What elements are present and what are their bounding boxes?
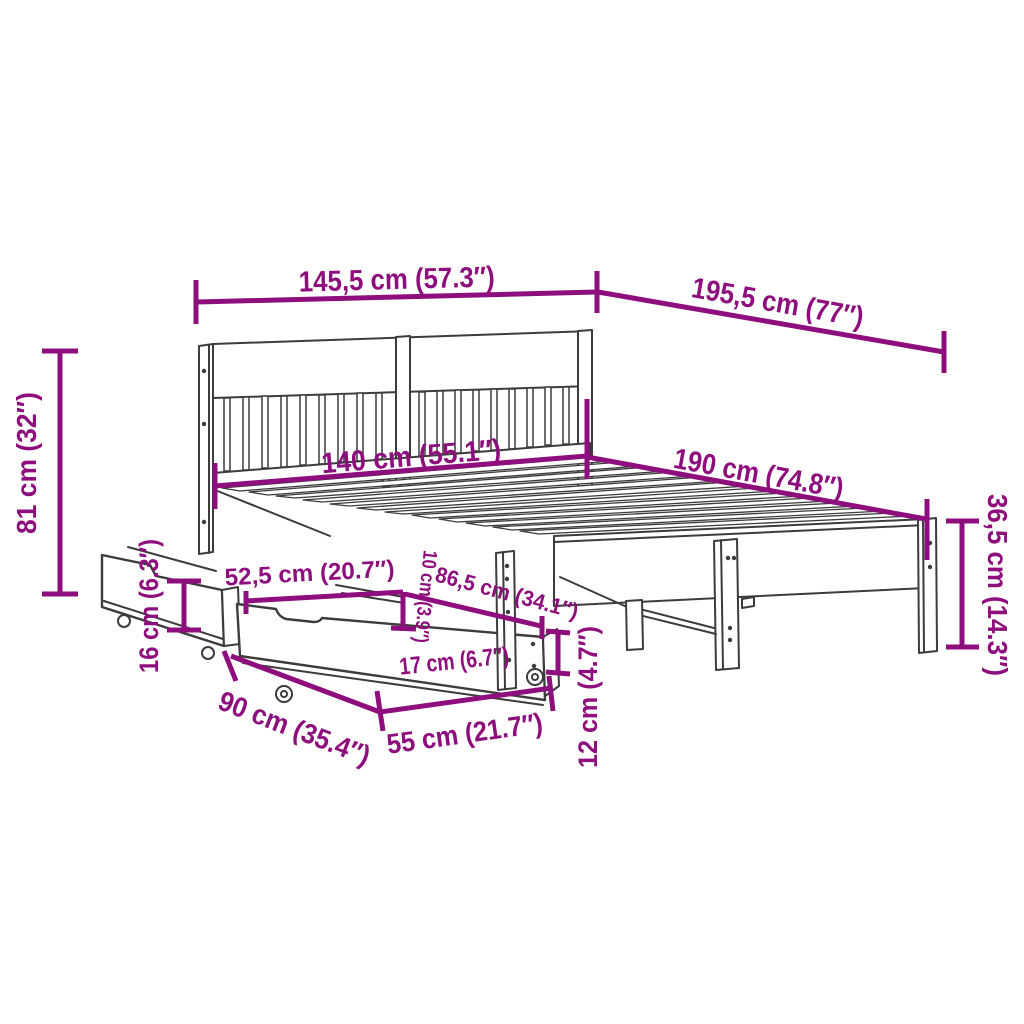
label-drawer-length: 55 cm (21.7″) (385, 707, 545, 760)
label-overall-width: 145,5 cm (57.3″) (298, 261, 495, 298)
drawer-1 (102, 547, 240, 659)
label-underbed-clearance: 12 cm (4.7″) (573, 626, 603, 768)
bed-frame-drawing (102, 330, 937, 705)
side-rail (554, 519, 926, 608)
label-drawer-top-length: 52,5 cm (20.7″) (224, 556, 395, 592)
bed-dimension-diagram-svg: 145,5 cm (57.3″) 195,5 cm (77″) 81 cm (3… (0, 0, 1024, 1024)
dim-overall-width: 145,5 cm (57.3″) (196, 261, 597, 324)
dim-frame-height: 36,5 cm (14.3″) (946, 494, 1013, 676)
label-frame-height: 36,5 cm (14.3″) (982, 494, 1013, 676)
dim-headboard-height: 81 cm (32″) (11, 351, 78, 594)
label-drawer-depth: 90 cm (35.4″) (214, 685, 374, 771)
middle-leg (714, 539, 739, 670)
diagram-canvas: 145,5 cm (57.3″) 195,5 cm (77″) 81 cm (3… (0, 0, 1024, 1024)
label-drawer-side-height: 16 cm (6.3″) (134, 539, 164, 673)
caster-wheel (118, 615, 130, 627)
dim-overall-length: 195,5 cm (77″) (598, 272, 944, 373)
caster-wheel (202, 647, 214, 659)
label-headboard-height: 81 cm (32″) (11, 392, 42, 534)
